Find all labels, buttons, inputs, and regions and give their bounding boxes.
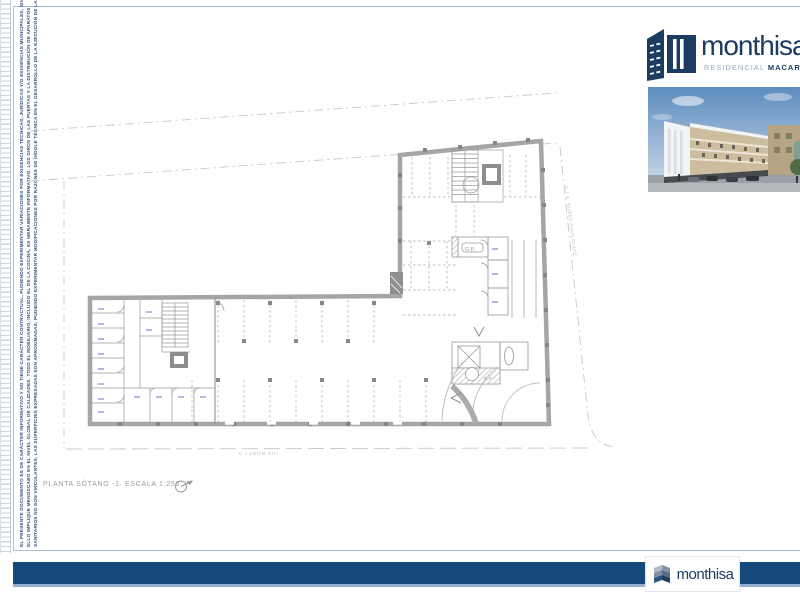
brand-wordmark: monthisa xyxy=(701,30,800,62)
building-render-scene xyxy=(648,87,800,192)
footer-zigzag-icon xyxy=(652,564,672,584)
street-label-bottom: C / LEON XIII xyxy=(239,451,279,456)
elevator-cab-top xyxy=(486,168,497,181)
brand-logo: monthisa RESIDENCIAL MACARENA xyxy=(646,24,800,84)
architectural-plan-sheet: { "page": { "plan_title": "PLANTA SÓTANO… xyxy=(0,0,800,600)
plan-title: PLANTA SÓTANO -1. ESCALA 1:250 xyxy=(43,481,180,488)
footer-logo-box: monthisa xyxy=(645,556,740,592)
gp-core-label: G.P. xyxy=(484,376,492,381)
brand-subtitle-project: MACARENA xyxy=(768,63,800,72)
footer-logo-text: monthisa xyxy=(677,566,734,583)
building-render-photo xyxy=(648,87,800,192)
brand-subtitle: RESIDENCIAL MACARENA xyxy=(704,63,800,72)
elevator-cab-left xyxy=(174,356,184,364)
gp-room-label: G.P. xyxy=(465,247,476,253)
brand-subtitle-residencial: RESIDENCIAL xyxy=(704,63,765,72)
vent-shaft xyxy=(390,272,403,294)
building-logo-icon xyxy=(646,26,696,82)
